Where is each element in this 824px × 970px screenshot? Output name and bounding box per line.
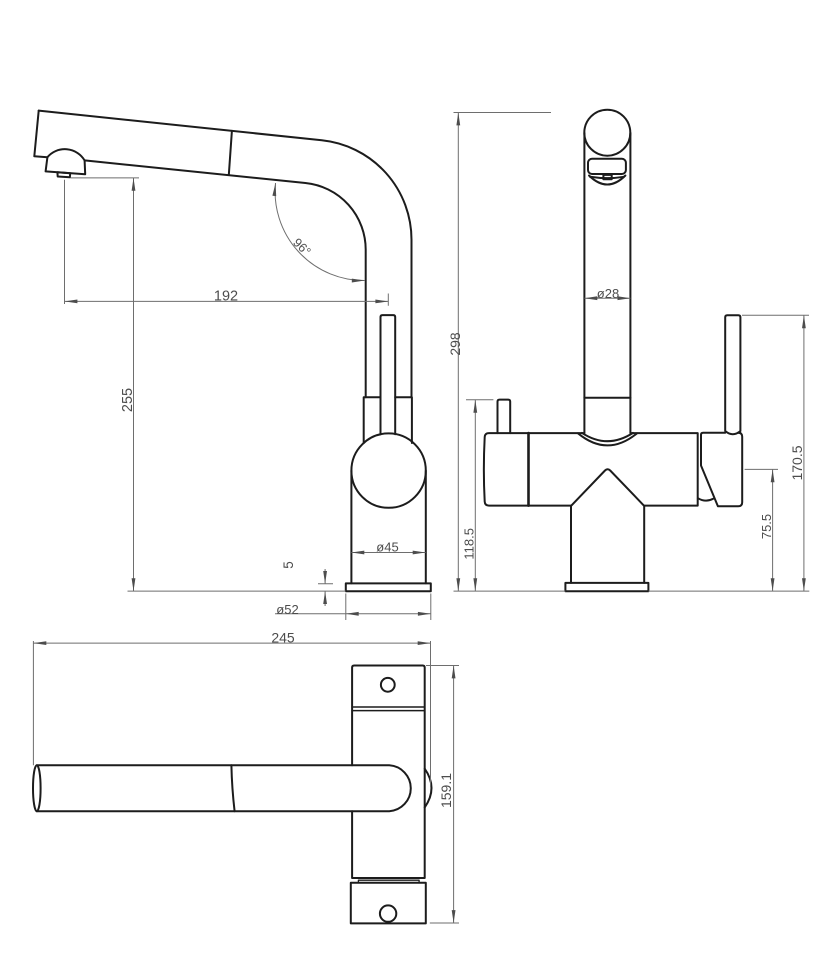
svg-text:96°: 96°: [290, 236, 313, 259]
svg-text:ø45: ø45: [376, 539, 398, 554]
svg-text:ø28: ø28: [597, 286, 619, 301]
svg-text:192: 192: [214, 289, 238, 305]
svg-text:245: 245: [271, 630, 295, 646]
svg-text:170.5: 170.5: [789, 445, 805, 480]
svg-text:ø52: ø52: [276, 602, 298, 617]
svg-text:298: 298: [447, 332, 463, 356]
svg-text:75.5: 75.5: [759, 514, 774, 539]
svg-text:118.5: 118.5: [462, 528, 477, 560]
svg-text:159.1: 159.1: [438, 773, 454, 808]
svg-text:255: 255: [120, 388, 136, 412]
svg-text:5: 5: [281, 561, 296, 569]
